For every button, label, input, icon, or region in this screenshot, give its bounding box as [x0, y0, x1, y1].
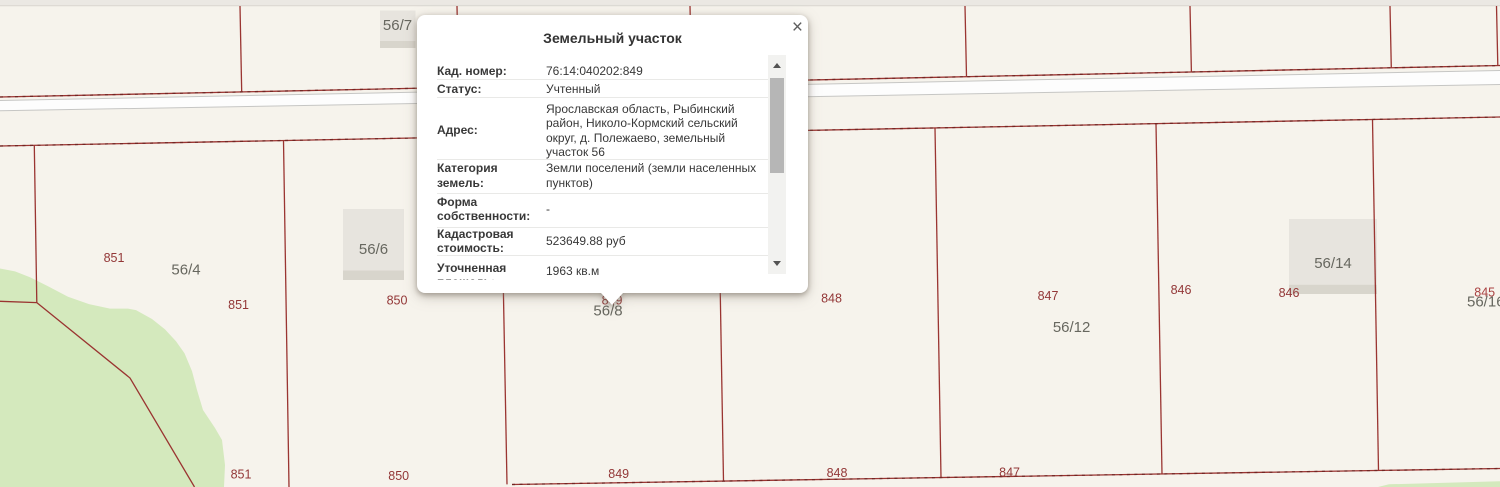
svg-text:56/16: 56/16 [1467, 293, 1500, 310]
svg-text:848: 848 [821, 292, 842, 306]
svg-text:848: 848 [827, 466, 848, 480]
svg-text:851: 851 [104, 251, 125, 265]
svg-text:851: 851 [228, 298, 249, 312]
svg-text:56/12: 56/12 [1053, 319, 1091, 336]
svg-text:846: 846 [1279, 286, 1300, 300]
svg-text:56/7: 56/7 [383, 17, 412, 34]
svg-text:56/6: 56/6 [359, 241, 388, 258]
svg-text:56/14: 56/14 [1314, 255, 1352, 272]
svg-text:851: 851 [231, 467, 252, 481]
svg-text:847: 847 [1038, 289, 1059, 303]
svg-text:849: 849 [608, 467, 629, 481]
svg-text:846: 846 [1171, 283, 1192, 297]
svg-text:56/4: 56/4 [171, 262, 200, 279]
svg-text:850: 850 [387, 293, 408, 307]
svg-text:850: 850 [388, 469, 409, 483]
svg-text:847: 847 [999, 465, 1020, 479]
